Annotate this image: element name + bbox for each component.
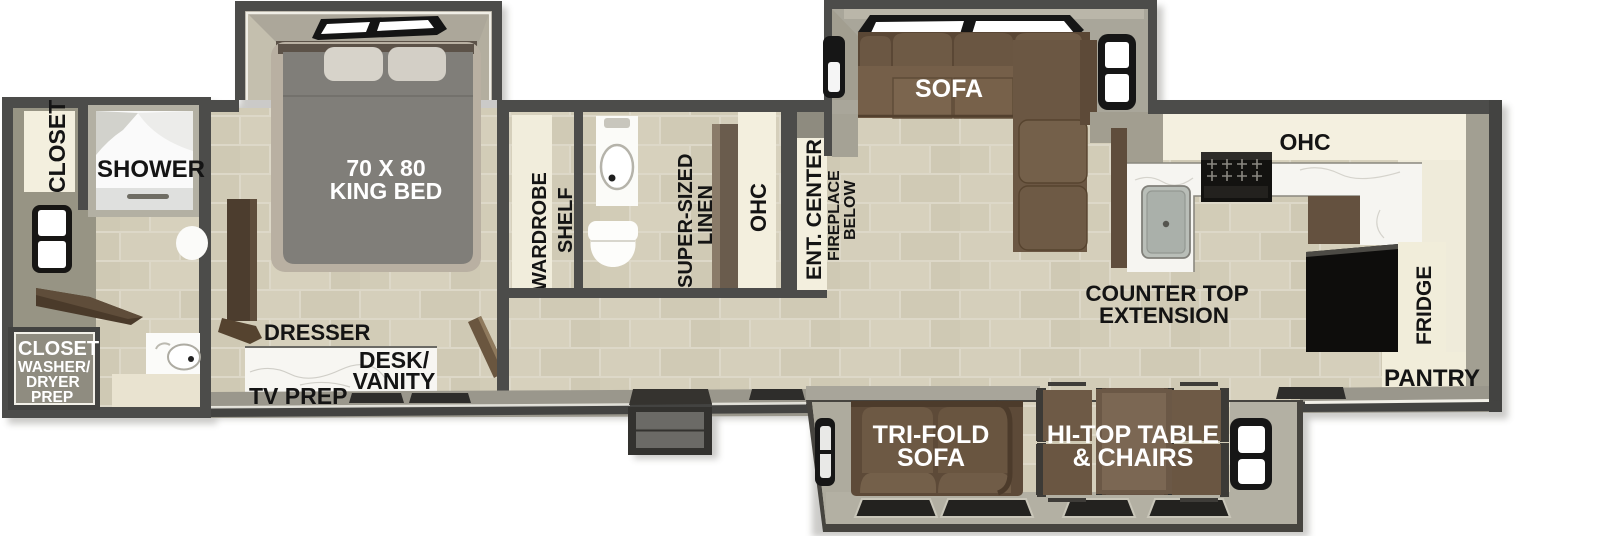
svg-text:PREP: PREP xyxy=(31,389,73,406)
svg-text:TV PREP: TV PREP xyxy=(249,383,347,409)
svg-text:SHOWER: SHOWER xyxy=(97,156,205,183)
svg-text:PANTRY: PANTRY xyxy=(1384,365,1480,392)
svg-text:& CHAIRS: & CHAIRS xyxy=(1073,444,1194,472)
svg-text:KING BED: KING BED xyxy=(330,178,442,204)
svg-text:OHC: OHC xyxy=(746,183,771,232)
svg-text:SOFA: SOFA xyxy=(915,75,983,103)
svg-text:CLOSET: CLOSET xyxy=(44,100,70,193)
svg-text:VANITY: VANITY xyxy=(353,368,436,394)
svg-text:SOFA: SOFA xyxy=(897,444,965,472)
svg-text:CLOSET: CLOSET xyxy=(18,338,99,360)
svg-text:SHELF: SHELF xyxy=(555,187,577,253)
svg-text:DRESSER: DRESSER xyxy=(264,320,370,345)
svg-text:LINEN: LINEN xyxy=(695,185,717,245)
svg-text:OHC: OHC xyxy=(1279,129,1330,155)
svg-text:FRIDGE: FRIDGE xyxy=(1413,266,1436,345)
svg-text:BELOW: BELOW xyxy=(842,180,859,240)
svg-text:WARDROBE: WARDROBE xyxy=(529,172,551,291)
svg-text:SUPER-SIZED: SUPER-SIZED xyxy=(675,154,697,288)
svg-text:ENT. CENTER: ENT. CENTER xyxy=(802,139,826,280)
svg-text:EXTENSION: EXTENSION xyxy=(1099,303,1229,328)
svg-text:FIREPLACE: FIREPLACE xyxy=(826,170,843,261)
